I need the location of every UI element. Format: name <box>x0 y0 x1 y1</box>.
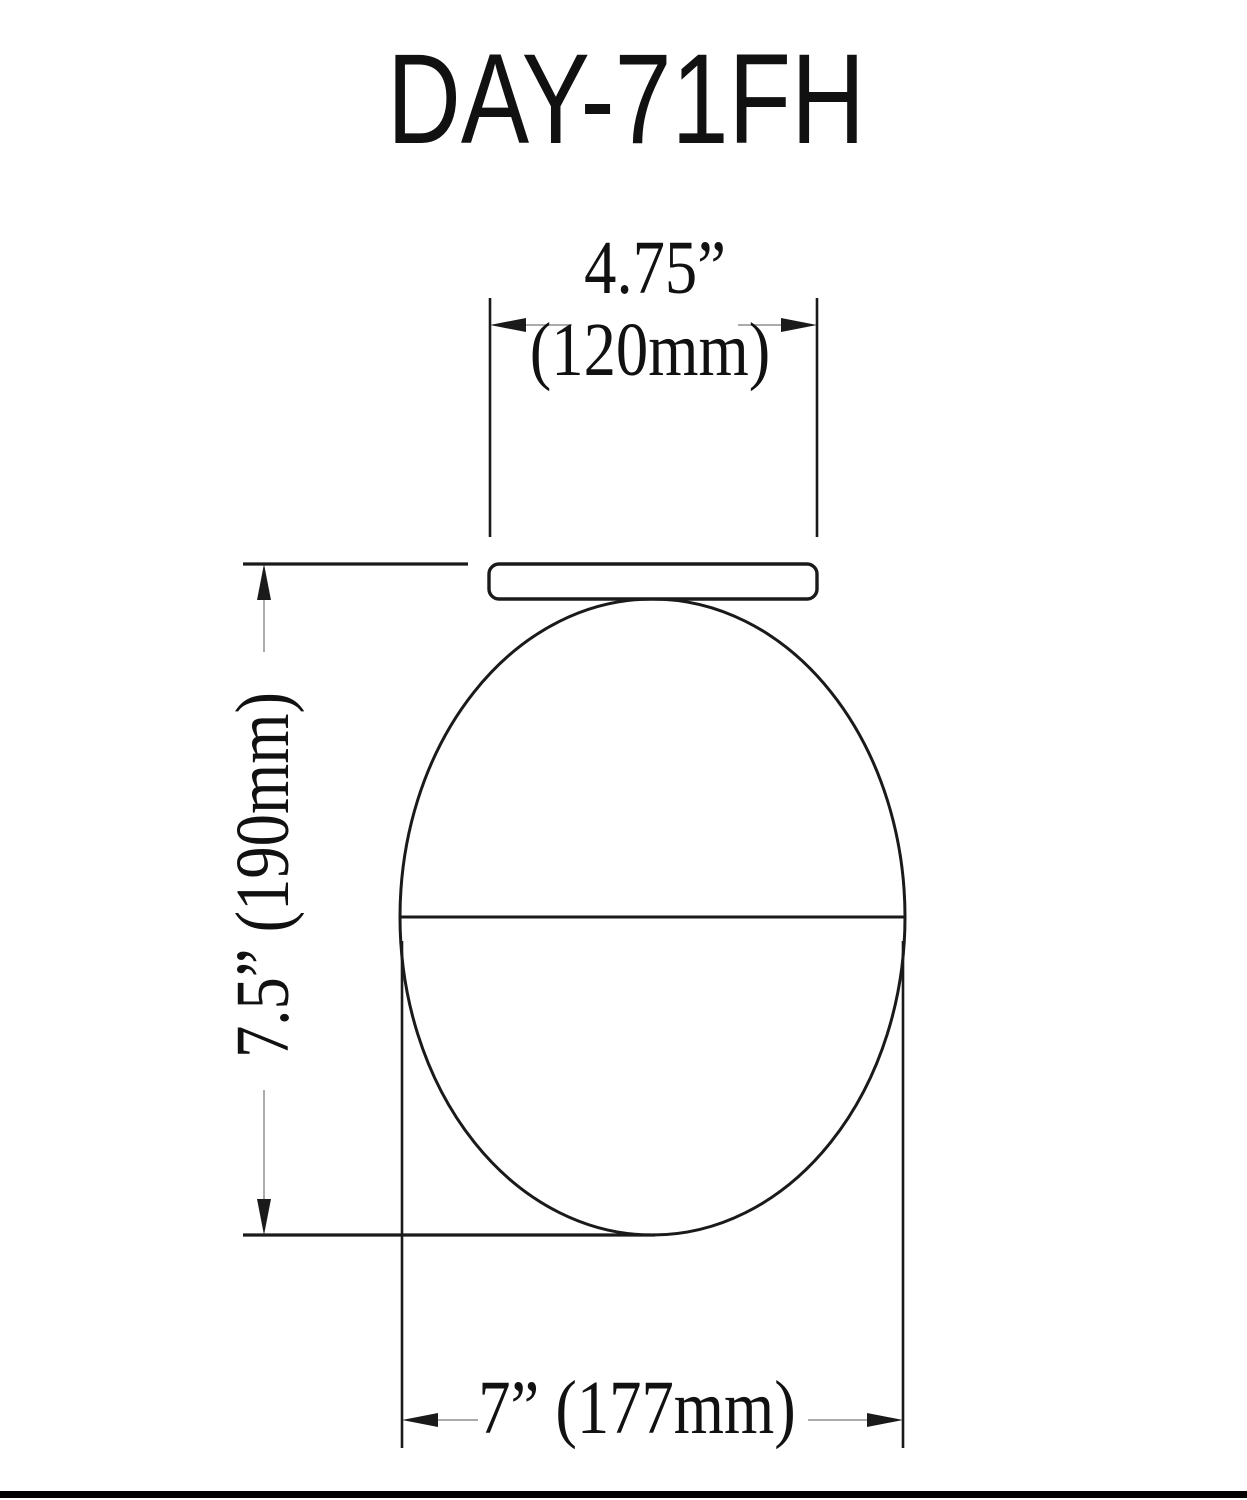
arrowhead-up-icon <box>257 564 271 600</box>
mounting-plate-outline <box>489 564 817 599</box>
top-width-label-metric: (120mm) <box>530 312 770 388</box>
dimension-drawing-canvas: DAY-71FH <box>0 0 1247 1500</box>
footer-bar <box>0 1491 1247 1498</box>
arrowhead-left-icon <box>402 1413 438 1427</box>
arrowhead-right-icon <box>781 318 817 332</box>
arrowhead-down-icon <box>257 1199 271 1235</box>
arrowhead-left-icon <box>490 318 526 332</box>
left-height-label: 7.5” (190mm) <box>225 692 301 1058</box>
arrowhead-right-icon <box>867 1413 903 1427</box>
globe-outline <box>400 599 905 1235</box>
bottom-width-label: 7” (177mm) <box>478 1370 796 1446</box>
top-width-label-imperial: 4.75” <box>584 230 726 306</box>
fixture-dimension-diagram <box>0 0 1247 1500</box>
